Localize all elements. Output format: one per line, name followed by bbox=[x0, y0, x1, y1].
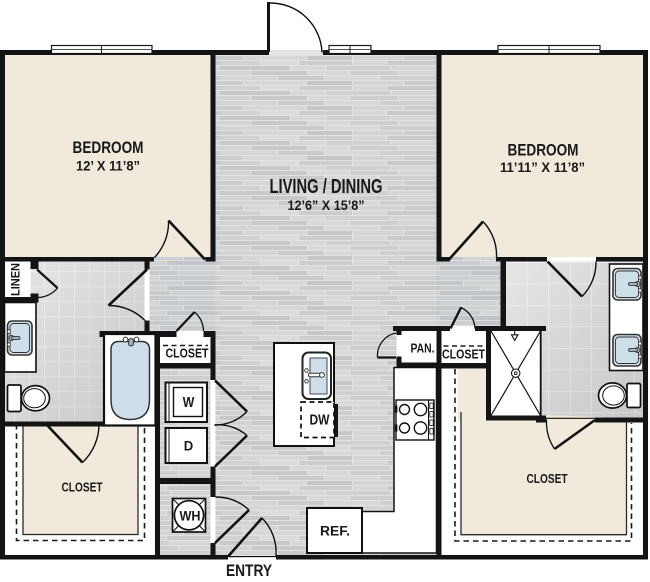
svg-text:12’6” X 15’8”: 12’6” X 15’8” bbox=[288, 197, 365, 213]
svg-text:DW: DW bbox=[310, 413, 330, 429]
svg-text:12’ X 11’8”: 12’ X 11’8” bbox=[76, 158, 140, 174]
svg-text:CLOSET: CLOSET bbox=[527, 472, 568, 486]
svg-text:CLOSET: CLOSET bbox=[442, 347, 485, 362]
svg-text:REF.: REF. bbox=[320, 524, 350, 539]
svg-text:PAN.: PAN. bbox=[411, 342, 435, 356]
svg-text:ENTRY: ENTRY bbox=[226, 562, 272, 580]
svg-text:BEDROOM: BEDROOM bbox=[508, 141, 579, 160]
svg-text:LINEN: LINEN bbox=[9, 263, 23, 296]
svg-text:W: W bbox=[183, 395, 195, 411]
svg-text:CLOSET: CLOSET bbox=[166, 346, 209, 361]
svg-text:WH: WH bbox=[180, 509, 201, 524]
svg-text:CLOSET: CLOSET bbox=[62, 481, 103, 495]
svg-text:LIVING / DINING: LIVING / DINING bbox=[270, 176, 383, 198]
svg-text:D: D bbox=[184, 438, 194, 454]
svg-text:BEDROOM: BEDROOM bbox=[73, 138, 144, 157]
svg-text:11’11” X 11’8”: 11’11” X 11’8” bbox=[500, 159, 585, 175]
